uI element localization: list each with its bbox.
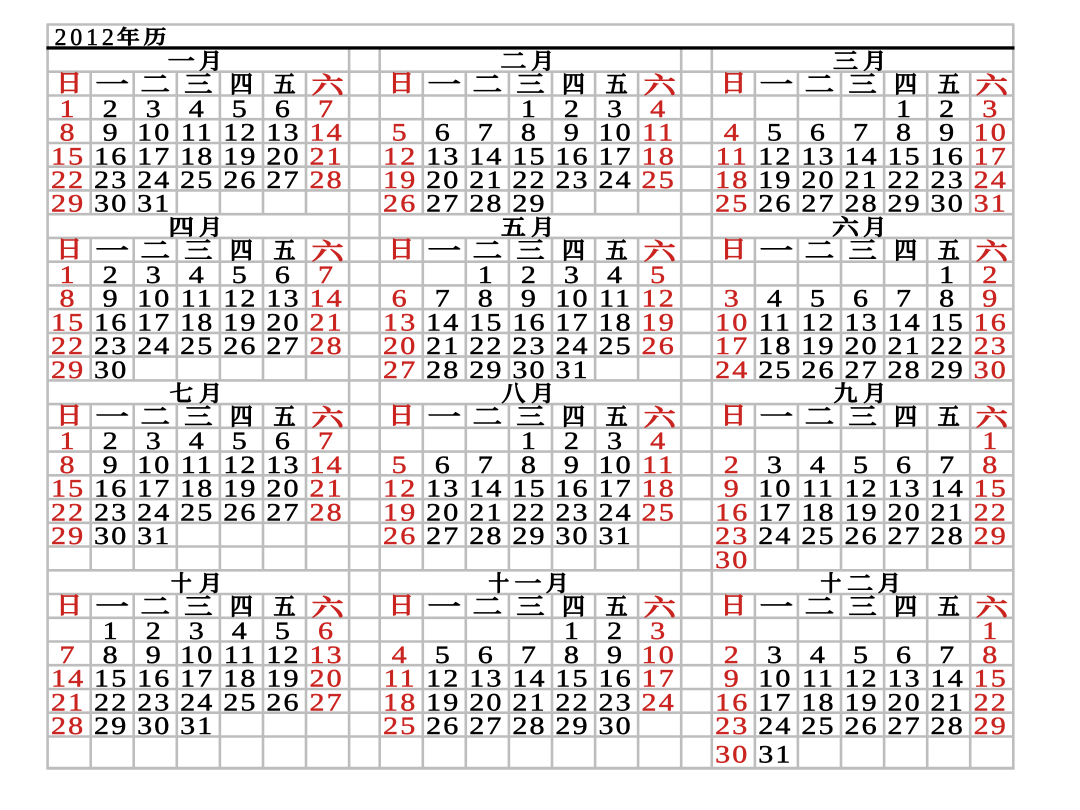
svg-text:31: 31 (974, 191, 1008, 218)
svg-text:27: 27 (266, 167, 300, 194)
svg-text:25: 25 (642, 499, 676, 526)
svg-text:23: 23 (555, 167, 589, 194)
svg-text:26: 26 (223, 499, 257, 526)
svg-text:25: 25 (180, 167, 214, 194)
svg-text:23: 23 (715, 713, 749, 740)
svg-text:28: 28 (512, 713, 546, 740)
svg-text:27: 27 (266, 333, 300, 360)
svg-text:28: 28 (931, 523, 965, 550)
svg-text:31: 31 (137, 191, 171, 218)
svg-text:26: 26 (383, 191, 417, 218)
svg-text:30: 30 (715, 547, 749, 574)
svg-text:28: 28 (309, 499, 343, 526)
svg-text:25: 25 (801, 523, 835, 550)
svg-text:29: 29 (974, 713, 1008, 740)
svg-text:25: 25 (180, 499, 214, 526)
svg-text:31: 31 (598, 523, 632, 550)
svg-text:27: 27 (426, 523, 460, 550)
svg-text:28: 28 (887, 357, 921, 384)
svg-text:30: 30 (715, 742, 749, 769)
svg-text:26: 26 (844, 523, 878, 550)
svg-text:29: 29 (51, 523, 85, 550)
svg-text:26: 26 (383, 523, 417, 550)
svg-text:30: 30 (94, 523, 128, 550)
svg-text:25: 25 (642, 167, 676, 194)
svg-text:30: 30 (598, 713, 632, 740)
svg-text:31: 31 (180, 713, 214, 740)
svg-text:26: 26 (223, 333, 257, 360)
svg-text:30: 30 (137, 713, 171, 740)
svg-text:29: 29 (974, 523, 1008, 550)
svg-text:27: 27 (309, 689, 343, 716)
svg-text:26: 26 (758, 191, 792, 218)
svg-text:24: 24 (758, 523, 792, 550)
svg-text:24: 24 (715, 357, 749, 384)
svg-text:26: 26 (642, 333, 676, 360)
svg-text:30: 30 (974, 357, 1008, 384)
svg-text:28: 28 (931, 713, 965, 740)
svg-text:29: 29 (512, 523, 546, 550)
svg-text:27: 27 (887, 713, 921, 740)
svg-text:30: 30 (555, 523, 589, 550)
svg-text:25: 25 (715, 191, 749, 218)
svg-text:28: 28 (844, 191, 878, 218)
svg-text:27: 27 (887, 523, 921, 550)
svg-text:25: 25 (801, 713, 835, 740)
svg-text:26: 26 (844, 713, 878, 740)
svg-text:27: 27 (801, 191, 835, 218)
svg-text:26: 26 (266, 689, 300, 716)
svg-text:25: 25 (758, 357, 792, 384)
svg-text:30: 30 (94, 191, 128, 218)
svg-text:25: 25 (180, 333, 214, 360)
svg-text:27: 27 (383, 357, 417, 384)
svg-text:29: 29 (94, 713, 128, 740)
svg-text:29: 29 (931, 357, 965, 384)
svg-text:26: 26 (426, 713, 460, 740)
svg-text:25: 25 (598, 333, 632, 360)
svg-text:29: 29 (469, 357, 503, 384)
svg-text:28: 28 (309, 167, 343, 194)
svg-text:29: 29 (887, 191, 921, 218)
svg-text:27: 27 (266, 499, 300, 526)
svg-text:31: 31 (555, 357, 589, 384)
svg-text:28: 28 (469, 523, 503, 550)
svg-text:29: 29 (512, 191, 546, 218)
svg-text:27: 27 (426, 191, 460, 218)
svg-text:26: 26 (223, 167, 257, 194)
svg-text:25: 25 (383, 713, 417, 740)
svg-text:24: 24 (137, 333, 171, 360)
svg-text:24: 24 (598, 167, 632, 194)
svg-text:28: 28 (426, 357, 460, 384)
svg-text:29: 29 (555, 713, 589, 740)
svg-text:25: 25 (223, 689, 257, 716)
svg-text:27: 27 (844, 357, 878, 384)
svg-text:28: 28 (51, 713, 85, 740)
svg-text:31: 31 (758, 742, 792, 769)
svg-text:28: 28 (309, 333, 343, 360)
svg-text:29: 29 (51, 191, 85, 218)
svg-text:27: 27 (469, 713, 503, 740)
svg-text:29: 29 (51, 357, 85, 384)
svg-text:24: 24 (758, 713, 792, 740)
svg-text:31: 31 (137, 523, 171, 550)
svg-text:30: 30 (512, 357, 546, 384)
svg-text:26: 26 (801, 357, 835, 384)
svg-text:28: 28 (469, 191, 503, 218)
svg-text:30: 30 (94, 357, 128, 384)
svg-text:30: 30 (931, 191, 965, 218)
svg-text:24: 24 (642, 689, 676, 716)
